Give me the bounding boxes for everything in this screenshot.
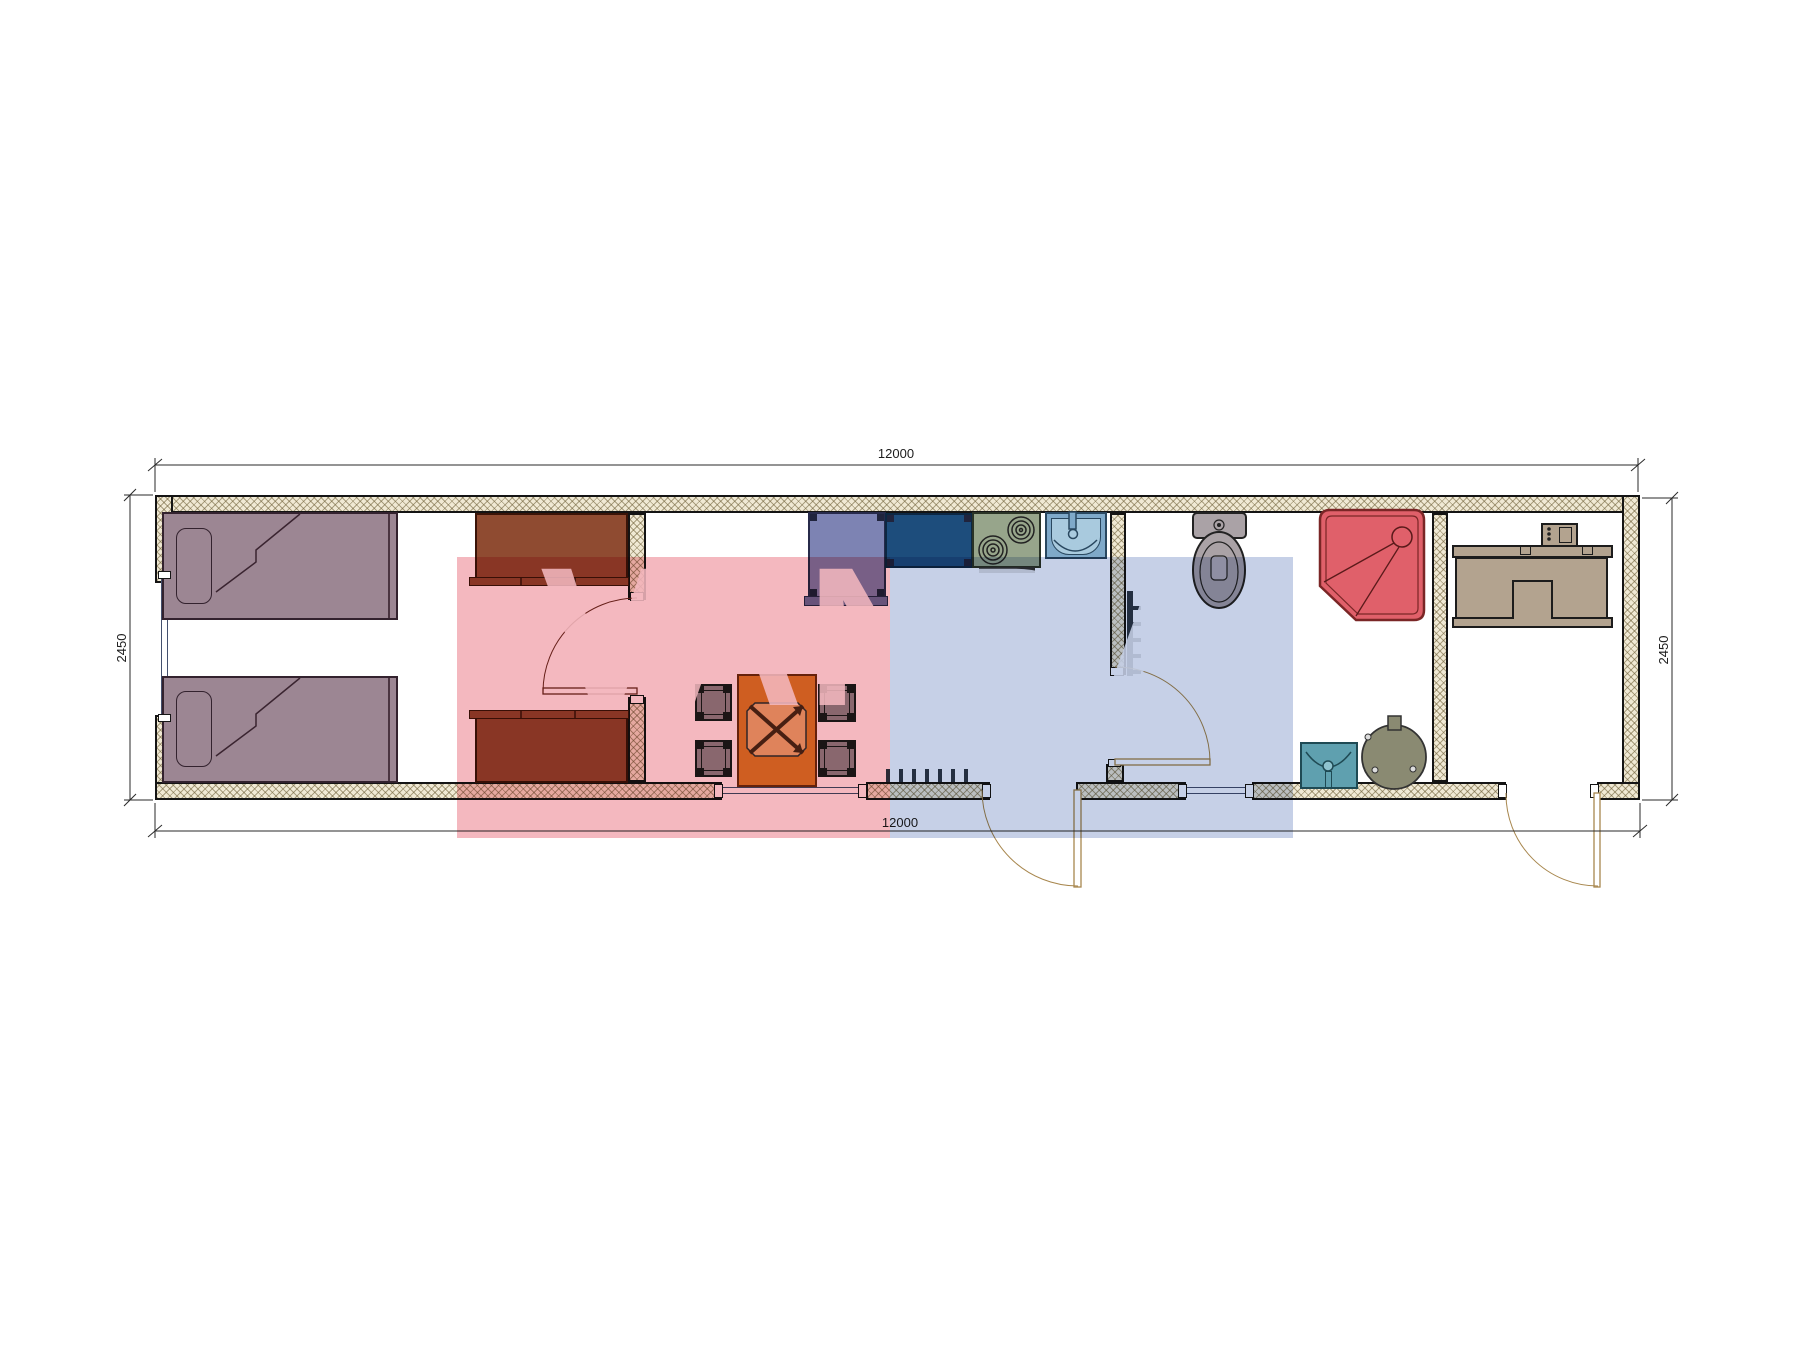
stove-burners bbox=[979, 517, 1034, 564]
kitchen-sink-basin-arc bbox=[1054, 540, 1097, 551]
door-leaf-entry bbox=[1074, 790, 1081, 887]
door-leaf-bath bbox=[1115, 759, 1210, 765]
door-arc-bath bbox=[1115, 667, 1210, 762]
door-arc-bedroom bbox=[543, 598, 637, 692]
door-arc-office bbox=[1506, 793, 1598, 886]
door-leaf-bedroom bbox=[543, 688, 637, 694]
floor-plan-canvas: 12000 12000 2450 2450 VANDA bbox=[0, 0, 1800, 1350]
plan-detail-layer: 12000 12000 2450 2450 bbox=[0, 0, 1800, 1350]
dimension-lines bbox=[124, 458, 1678, 838]
toilet-drain bbox=[1211, 556, 1227, 580]
door-leaf-office bbox=[1594, 793, 1600, 887]
kitchen-sink-tap-knob bbox=[1069, 530, 1078, 539]
blanket-fold-bottom-bed bbox=[216, 678, 300, 756]
blanket-fold-top-bed bbox=[216, 514, 300, 592]
dim-label-right: 2450 bbox=[1656, 636, 1671, 665]
boiler-pipe bbox=[1388, 716, 1401, 730]
kitchen-sink-tap bbox=[1069, 512, 1076, 529]
dim-label-bottom: 12000 bbox=[882, 815, 918, 830]
door-arc-entry bbox=[982, 790, 1078, 886]
dim-label-left: 2450 bbox=[114, 634, 129, 663]
dim-label-top: 12000 bbox=[878, 446, 914, 461]
shower-drain bbox=[1392, 527, 1412, 547]
boiler bbox=[1362, 725, 1426, 789]
printer-buttons bbox=[1547, 527, 1551, 541]
shower-tray bbox=[1320, 510, 1424, 620]
bath-sink-tap-knob bbox=[1323, 761, 1333, 771]
toilet-flush-dot bbox=[1217, 523, 1221, 527]
cabinet-front-dividers bbox=[521, 577, 575, 719]
